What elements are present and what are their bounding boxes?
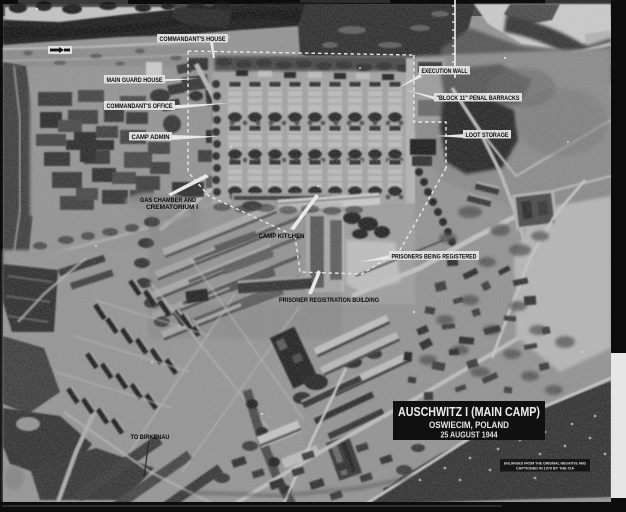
svg-text:PRISONER REGISTRATION BUILDING: PRISONER REGISTRATION BUILDING [279, 297, 379, 304]
svg-text:CAMP KITCHEN: CAMP KITCHEN [259, 233, 305, 240]
svg-text:COMMANDANT'S HOUSE: COMMANDANT'S HOUSE [160, 36, 227, 43]
svg-text:CREMATORIUM I: CREMATORIUM I [146, 204, 198, 211]
svg-text:ENLARGED FROM THE ORIGINAL NEG: ENLARGED FROM THE ORIGINAL NEGATIVE AND [504, 462, 586, 466]
svg-text:LOOT STORAGE: LOOT STORAGE [466, 132, 510, 139]
svg-text:COMMANDANT'S OFFICE: COMMANDANT'S OFFICE [107, 103, 174, 110]
svg-text:PRISONERS BEING REGISTERED: PRISONERS BEING REGISTERED [392, 253, 477, 260]
svg-text:MAIN GUARD HOUSE: MAIN GUARD HOUSE [107, 77, 164, 84]
svg-text:AUSCHWITZ I (MAIN CAMP): AUSCHWITZ I (MAIN CAMP) [398, 404, 540, 419]
svg-text:TO BIRKENAU: TO BIRKENAU [131, 434, 170, 441]
svg-text:"BLOCK 11" PENAL BARRACKS: "BLOCK 11" PENAL BARRACKS [437, 95, 521, 102]
svg-text:CAMP ADMIN: CAMP ADMIN [132, 134, 170, 141]
svg-text:OSWIECIM, POLAND: OSWIECIM, POLAND [429, 420, 509, 431]
svg-text:25 AUGUST 1944: 25 AUGUST 1944 [441, 431, 498, 440]
svg-text:CAPTIONED IN 1979 BY THE CIA: CAPTIONED IN 1979 BY THE CIA [516, 467, 574, 471]
svg-text:EXECUTION WALL: EXECUTION WALL [422, 68, 468, 75]
svg-text:GAS CHAMBER AND: GAS CHAMBER AND [140, 197, 196, 204]
